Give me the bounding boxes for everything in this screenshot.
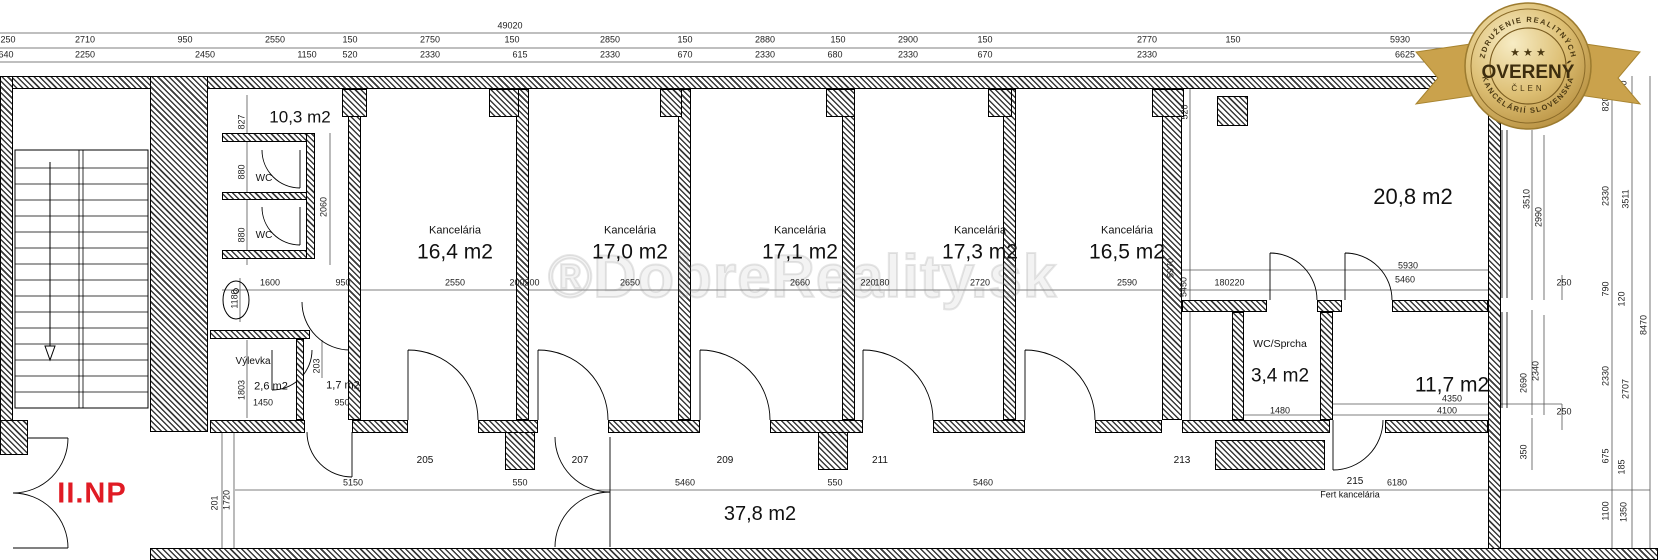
dim-label: 5460 xyxy=(1395,276,1415,285)
dim-label: 550 xyxy=(827,479,842,488)
annotation-fert: Fert kancelária xyxy=(1320,491,1380,500)
room-area-small: 1,7 m2 xyxy=(326,381,360,392)
dim-label: 950 xyxy=(177,36,192,45)
wall-corridor xyxy=(608,420,700,433)
dim-label: 1803 xyxy=(238,380,247,400)
dim-label: 2330 xyxy=(898,51,918,60)
dim-label: 200 xyxy=(524,279,539,288)
dim-label: 2690 xyxy=(1520,373,1529,393)
wall-toilet-bottom xyxy=(210,330,310,339)
dim-label: 2450 xyxy=(195,51,215,60)
dim-label: 5150 xyxy=(343,479,363,488)
dim-label: 3510 xyxy=(1523,189,1532,209)
wall-office-divider xyxy=(348,89,361,420)
stair-arrowhead-icon xyxy=(45,346,55,360)
dim-label: 5450 xyxy=(1180,277,1189,297)
floorplan-canvas: ®DobreReality.sk II.NP 10,3 m2 WC WC Výl… xyxy=(0,0,1658,560)
room-area-office5: 16,5 m2 xyxy=(1089,242,1165,263)
dim-label: 3511 xyxy=(1622,189,1631,208)
dim-label: 250 xyxy=(1556,408,1571,417)
wall-right xyxy=(1488,76,1501,560)
dim-label: 2550 xyxy=(445,279,465,288)
dim-label: 180 xyxy=(1214,279,1229,288)
wall-wc-separator xyxy=(222,192,314,200)
dim-label: 2340 xyxy=(1532,361,1541,381)
dim-label: 180 xyxy=(874,279,889,288)
pillar xyxy=(342,89,367,117)
dim-label: 220 xyxy=(860,279,875,288)
pillar xyxy=(505,432,535,470)
dim-label: 8470 xyxy=(1640,315,1649,335)
wall-corridor xyxy=(933,420,1025,433)
dim-label: 4350 xyxy=(1442,395,1462,404)
room-area-office1: 16,4 m2 xyxy=(417,242,493,263)
dim-label: 2330 xyxy=(600,51,620,60)
dim-label: 2720 xyxy=(970,279,990,288)
dim-label: 2990 xyxy=(1535,207,1544,227)
dim-label: 5930 xyxy=(1398,262,1418,271)
dim-label: 2330 xyxy=(1602,186,1611,206)
dim-label: 2060 xyxy=(320,197,329,217)
wall-block-215 xyxy=(1215,440,1325,470)
dim-label: 880 xyxy=(238,164,247,179)
dim-label: 2850 xyxy=(600,36,620,45)
dim-label: 4100 xyxy=(1437,407,1457,416)
dim-label: 6180 xyxy=(1387,479,1407,488)
wall-office-divider-thick xyxy=(1162,89,1182,420)
pillar xyxy=(988,89,1012,117)
room-area-office2: 17,0 m2 xyxy=(592,242,668,263)
room-area-office4: 17,3 m2 xyxy=(942,242,1018,263)
wall-wc-separator xyxy=(222,133,314,142)
dim-label: 615 xyxy=(512,51,527,60)
room-area-office3: 17,1 m2 xyxy=(762,242,838,263)
room-label-wc1: WC xyxy=(256,174,273,184)
dim-label: 1600 xyxy=(260,279,280,288)
dim-label: 250 xyxy=(0,36,15,45)
pillar xyxy=(1217,96,1248,126)
badge-title: OVERENÝ xyxy=(1482,61,1575,83)
wall-corridor xyxy=(352,420,408,433)
dim-label: 950 xyxy=(335,279,350,288)
room-label-office5: Kancelária xyxy=(1101,226,1153,237)
wall-office-divider xyxy=(516,89,529,420)
dim-label: 150 xyxy=(830,36,845,45)
dim-label: 200 xyxy=(509,279,524,288)
room-label-office3: Kancelária xyxy=(774,226,826,237)
dim-label: 2330 xyxy=(1602,366,1611,386)
staircase xyxy=(15,150,148,408)
wall-corridor xyxy=(1095,420,1162,433)
window-lines xyxy=(1502,130,1507,408)
wall-left xyxy=(0,76,13,432)
room-area-117: 11,7 m2 xyxy=(1415,375,1489,396)
room-label-office4: Kancelária xyxy=(954,226,1006,237)
badge-stars-icon: ★ ★ ★ xyxy=(1510,47,1546,59)
dim-label: 49020 xyxy=(497,22,522,31)
dim-label: 150 xyxy=(1225,36,1240,45)
dim-label: 150 xyxy=(504,36,519,45)
room-number: 213 xyxy=(1174,456,1191,466)
dim-label: 827 xyxy=(238,114,247,129)
dim-label: 1180 xyxy=(231,289,240,308)
dim-label: 675 xyxy=(1602,448,1611,463)
wall-wcsprcha-right xyxy=(1320,312,1333,420)
room-number: 209 xyxy=(717,456,734,466)
wall-corridor xyxy=(770,420,863,433)
dim-label: 220 xyxy=(1229,279,1244,288)
dim-label: 201 xyxy=(211,495,220,510)
room-number: 205 xyxy=(417,456,434,466)
dim-label: 5970 xyxy=(1167,258,1176,278)
dim-label: 680 xyxy=(827,51,842,60)
dim-label: 1450 xyxy=(253,399,273,408)
wall-vylevka-divider xyxy=(296,339,304,420)
room-number: 207 xyxy=(572,456,589,466)
dim-label: 2750 xyxy=(420,36,440,45)
dim-label: 2770 xyxy=(1137,36,1157,45)
dim-label: 2710 xyxy=(75,36,95,45)
dim-label: 640 xyxy=(0,51,14,60)
pillar xyxy=(826,89,855,117)
room-area-big: 20,8 m2 xyxy=(1373,186,1453,208)
dim-label: 2330 xyxy=(420,51,440,60)
dim-label: 150 xyxy=(977,36,992,45)
wall-stair-core xyxy=(150,76,208,432)
dim-label: 520 xyxy=(1181,104,1190,119)
stair-treads xyxy=(15,168,148,392)
wall-bigroom-bottom xyxy=(1392,300,1488,312)
dim-label: 1350 xyxy=(1620,502,1629,522)
dim-label: 2880 xyxy=(755,36,775,45)
room-label-wc2: WC xyxy=(256,231,273,241)
room-area-hall: 10,3 m2 xyxy=(269,109,330,126)
wall-bottom xyxy=(150,548,1658,560)
room-area-corridor: 37,8 m2 xyxy=(724,504,796,524)
room-label-wcsprcha: WC/Sprcha xyxy=(1253,339,1307,350)
dim-label: 520 xyxy=(342,51,357,60)
dim-label: 1100 xyxy=(1602,501,1611,520)
dim-label: 185 xyxy=(1618,459,1627,474)
room-number: 211 xyxy=(872,456,888,466)
dim-label: 2590 xyxy=(1117,279,1137,288)
dim-label: 1720 xyxy=(223,490,232,510)
dim-label: 5460 xyxy=(973,479,993,488)
dim-label: 2330 xyxy=(1137,51,1157,60)
wall-corridor xyxy=(210,420,305,433)
wall-wc-right xyxy=(306,133,315,259)
dim-label: 150 xyxy=(342,36,357,45)
room-label-vylevka: Výlevka xyxy=(235,357,270,367)
dim-label: 2707 xyxy=(1622,379,1631,399)
badge-subtitle: ČLEN xyxy=(1511,84,1544,93)
wall-corridor xyxy=(1182,420,1330,433)
dim-label: 550 xyxy=(512,479,527,488)
dim-label: 1150 xyxy=(297,51,316,60)
room-label-office2: Kancelária xyxy=(604,226,656,237)
dim-label: 1480 xyxy=(1270,407,1290,416)
dim-label: 670 xyxy=(977,51,992,60)
room-label-office1: Kancelária xyxy=(429,226,481,237)
certification-badge: ZDRUŽENIE REALITNÝCH KANCELÁRIÍ SLOVENSK… xyxy=(1398,0,1658,140)
dim-label: 880 xyxy=(238,227,247,242)
wall-top xyxy=(0,76,1492,89)
dim-label: 670 xyxy=(677,51,692,60)
dim-label: 120 xyxy=(1618,291,1627,306)
pillar xyxy=(818,432,848,470)
pillar xyxy=(489,89,519,117)
room-area-vylevka: 2,6 m2 xyxy=(254,382,288,393)
wall-wcsprcha-left xyxy=(1232,312,1244,420)
pillar xyxy=(660,89,682,117)
dim-label: 950 xyxy=(334,399,349,408)
dim-label: 2550 xyxy=(265,36,285,45)
floor-level-label: II.NP xyxy=(57,478,126,511)
room-number: 215 xyxy=(1347,477,1364,487)
dim-label: 2330 xyxy=(755,51,775,60)
dim-label: 203 xyxy=(313,358,322,373)
room-area-wcsprcha: 3,4 m2 xyxy=(1251,367,1309,386)
dim-label: 150 xyxy=(677,36,692,45)
dim-label: 350 xyxy=(1520,444,1529,459)
dim-label: 250 xyxy=(1556,279,1571,288)
door-arcs xyxy=(13,150,1392,548)
dim-label: 2660 xyxy=(790,279,810,288)
dim-label: 5460 xyxy=(675,479,695,488)
wall-bigroom-bottom xyxy=(1317,300,1342,312)
dim-label: 790 xyxy=(1602,281,1611,296)
dim-label: 2900 xyxy=(898,36,918,45)
wall-wc-separator xyxy=(222,250,314,259)
wall-corridor xyxy=(1385,420,1488,433)
dim-label: 2250 xyxy=(75,51,95,60)
dim-label: 2650 xyxy=(620,279,640,288)
pillar xyxy=(0,420,28,455)
wall-bigroom-bottom xyxy=(1182,300,1267,312)
